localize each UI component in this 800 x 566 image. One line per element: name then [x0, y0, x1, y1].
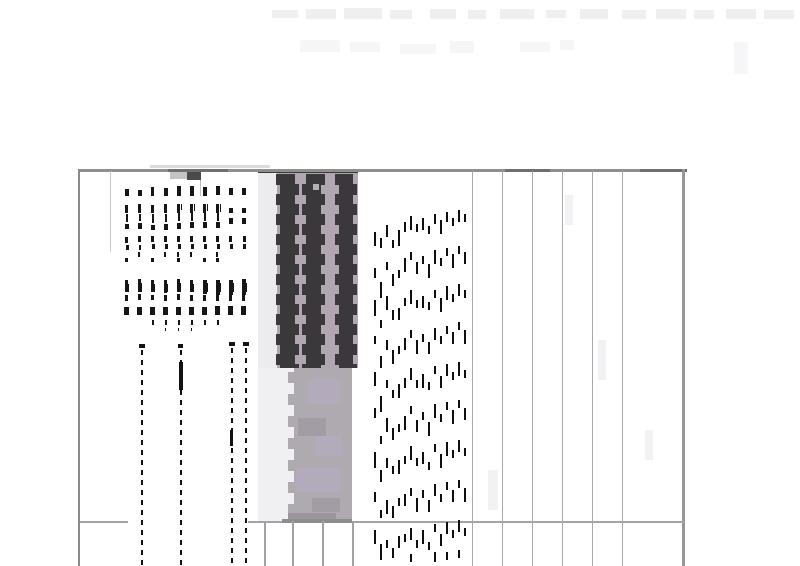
stroke-field-mark — [374, 408, 376, 418]
stroke-field-mark — [410, 252, 412, 260]
stroke-field-mark — [422, 218, 424, 230]
stroke-field-mark — [452, 218, 454, 226]
stroke-field-mark — [446, 522, 448, 534]
stroke-field-mark — [410, 446, 412, 460]
stroke-field-mark — [464, 448, 466, 456]
stroke-field-mark — [380, 510, 382, 518]
stroke-field-mark — [392, 506, 394, 518]
stroke-field-mark — [458, 520, 460, 532]
stroke-field-mark — [434, 444, 436, 452]
stroke-field-mark — [416, 380, 418, 388]
stroke-field-mark — [452, 530, 454, 538]
stroke-field-mark — [392, 428, 394, 440]
stroke-field-mark — [440, 414, 442, 422]
stroke-field-mark — [440, 534, 442, 546]
stroke-field-mark — [422, 490, 424, 498]
stroke-field-mark — [458, 362, 460, 376]
stroke-field-mark — [458, 246, 460, 254]
stroke-field-mark — [458, 550, 460, 558]
stroke-field-mark — [404, 378, 406, 388]
stroke-field-mark — [440, 494, 442, 502]
stroke-field-mark — [386, 540, 388, 548]
stroke-field-mark — [422, 412, 424, 420]
stroke-field-mark — [404, 222, 406, 232]
stroke-field-mark — [422, 256, 424, 264]
stroke-field-mark — [416, 458, 418, 466]
stroke-field-mark — [458, 210, 460, 222]
stroke-field-mark — [404, 494, 406, 506]
stroke-field-mark — [410, 216, 412, 230]
stroke-field-mark — [386, 262, 388, 270]
stroke-field-mark — [446, 286, 448, 300]
stroke-field-mark — [464, 214, 466, 222]
stroke-field-mark — [392, 274, 394, 286]
stroke-field-mark — [392, 548, 394, 558]
stroke-field-mark — [392, 310, 394, 320]
stroke-field-mark — [404, 534, 406, 542]
stroke-field-mark — [410, 368, 412, 380]
stroke-field-mark — [446, 402, 448, 410]
stroke-field-mark — [404, 298, 406, 306]
stroke-field-mark — [446, 482, 448, 490]
stroke-field-mark — [428, 500, 430, 512]
stroke-field-mark — [380, 470, 382, 482]
stroke-field-mark — [434, 290, 436, 298]
stroke-field-mark — [398, 460, 400, 474]
stroke-field-mark — [386, 225, 388, 237]
stroke-field-mark — [452, 332, 454, 344]
stroke-field-mark — [434, 250, 436, 264]
stroke-field-mark — [374, 452, 376, 468]
stroke-field-mark — [410, 528, 412, 540]
stroke-field-mark — [380, 544, 382, 560]
stroke-field-mark — [386, 380, 388, 388]
stroke-field-mark — [434, 328, 436, 340]
stroke-field-mark — [398, 424, 400, 432]
stroke-field-mark — [410, 330, 412, 338]
stroke-field-mark — [464, 488, 466, 502]
stroke-field-mark — [458, 400, 460, 408]
stroke-field-mark — [446, 326, 448, 334]
stroke-field-mark — [380, 356, 382, 368]
stroke-field-mark — [428, 462, 430, 470]
stroke-field-mark — [404, 258, 406, 272]
stroke-field-mark — [458, 480, 460, 488]
stroke-field-mark — [374, 336, 376, 344]
stroke-field-mark — [392, 240, 394, 248]
stroke-field — [0, 0, 800, 566]
stroke-field-mark — [440, 376, 442, 388]
stroke-field-mark — [452, 410, 454, 424]
stroke-field-mark — [464, 528, 466, 536]
stroke-field-mark — [380, 238, 382, 248]
stroke-field-mark — [422, 452, 424, 464]
stroke-field-mark — [374, 300, 376, 316]
stroke-field-mark — [392, 466, 394, 474]
stroke-field-mark — [428, 302, 430, 310]
stroke-field-mark — [374, 268, 376, 278]
stroke-field-mark — [374, 530, 376, 544]
stroke-field-mark — [386, 296, 388, 310]
stroke-field-mark — [428, 382, 430, 390]
stroke-field-mark — [434, 524, 436, 532]
stroke-field-mark — [380, 282, 382, 298]
stroke-field-mark — [446, 442, 448, 456]
stroke-field-mark — [458, 440, 460, 452]
stroke-field-mark — [452, 294, 454, 302]
stroke-field-mark — [386, 418, 388, 432]
stroke-field-mark — [434, 404, 436, 418]
stroke-field-mark — [446, 552, 448, 560]
stroke-field-mark — [428, 264, 430, 278]
stroke-field-mark — [386, 458, 388, 468]
stroke-field-mark — [380, 396, 382, 412]
stroke-field-mark — [452, 490, 454, 502]
stroke-field-mark — [398, 270, 400, 278]
stroke-field-mark — [398, 536, 400, 548]
stroke-field-mark — [428, 226, 430, 234]
stroke-field-mark — [416, 498, 418, 512]
stroke-field-mark — [464, 370, 466, 378]
stroke-field-mark — [374, 372, 376, 386]
stroke-field-mark — [458, 322, 460, 330]
stroke-field-mark — [392, 350, 394, 364]
stroke-field-mark — [434, 366, 436, 374]
stroke-field-mark — [452, 450, 454, 458]
stroke-field-mark — [404, 416, 406, 430]
stroke-field-mark — [440, 336, 442, 344]
stroke-field-mark — [428, 422, 430, 436]
stroke-field-mark — [440, 454, 442, 468]
stroke-field-mark — [416, 540, 418, 548]
stroke-field-mark — [446, 212, 448, 222]
stroke-field-mark — [410, 488, 412, 496]
stroke-field-mark — [428, 542, 430, 550]
stroke-field-mark — [386, 500, 388, 514]
stroke-field-mark — [386, 340, 388, 350]
scanned-page-canvas — [0, 0, 800, 566]
stroke-field-mark — [398, 384, 400, 398]
stroke-field-mark — [398, 308, 400, 320]
stroke-field-mark — [440, 298, 442, 312]
stroke-field-mark — [404, 456, 406, 464]
stroke-field-mark — [434, 552, 436, 562]
stroke-field-mark — [416, 262, 418, 274]
stroke-field-mark — [392, 390, 394, 398]
stroke-field-mark — [416, 224, 418, 232]
stroke-field-mark — [452, 254, 454, 268]
stroke-field-mark — [458, 284, 460, 296]
stroke-field-mark — [410, 290, 412, 304]
stroke-field-mark — [416, 340, 418, 354]
stroke-field-mark — [410, 406, 412, 414]
stroke-field-mark — [422, 374, 424, 388]
stroke-field-mark — [434, 214, 436, 224]
stroke-field-mark — [464, 290, 466, 298]
stroke-field-mark — [422, 530, 424, 544]
stroke-field-mark — [428, 342, 430, 354]
stroke-field-mark — [446, 248, 448, 256]
stroke-field-mark — [416, 420, 418, 432]
stroke-field-mark — [422, 296, 424, 308]
stroke-field-mark — [410, 554, 412, 562]
stroke-field-mark — [446, 364, 448, 376]
stroke-field-mark — [440, 220, 442, 234]
stroke-field-mark — [374, 492, 376, 502]
stroke-field-mark — [380, 320, 382, 328]
stroke-field-mark — [374, 232, 376, 246]
stroke-field-mark — [464, 330, 466, 344]
stroke-field-mark — [398, 230, 400, 246]
stroke-field-mark — [380, 436, 382, 444]
stroke-field-mark — [398, 498, 400, 506]
stroke-field-mark — [464, 408, 466, 420]
stroke-field-mark — [398, 346, 400, 354]
stroke-field-mark — [434, 484, 436, 496]
stroke-field-mark — [404, 338, 406, 350]
stroke-field-mark — [422, 334, 424, 342]
stroke-field-mark — [440, 258, 442, 266]
stroke-field-mark — [452, 372, 454, 380]
stroke-field-mark — [416, 300, 418, 308]
stroke-field-mark — [464, 252, 466, 264]
